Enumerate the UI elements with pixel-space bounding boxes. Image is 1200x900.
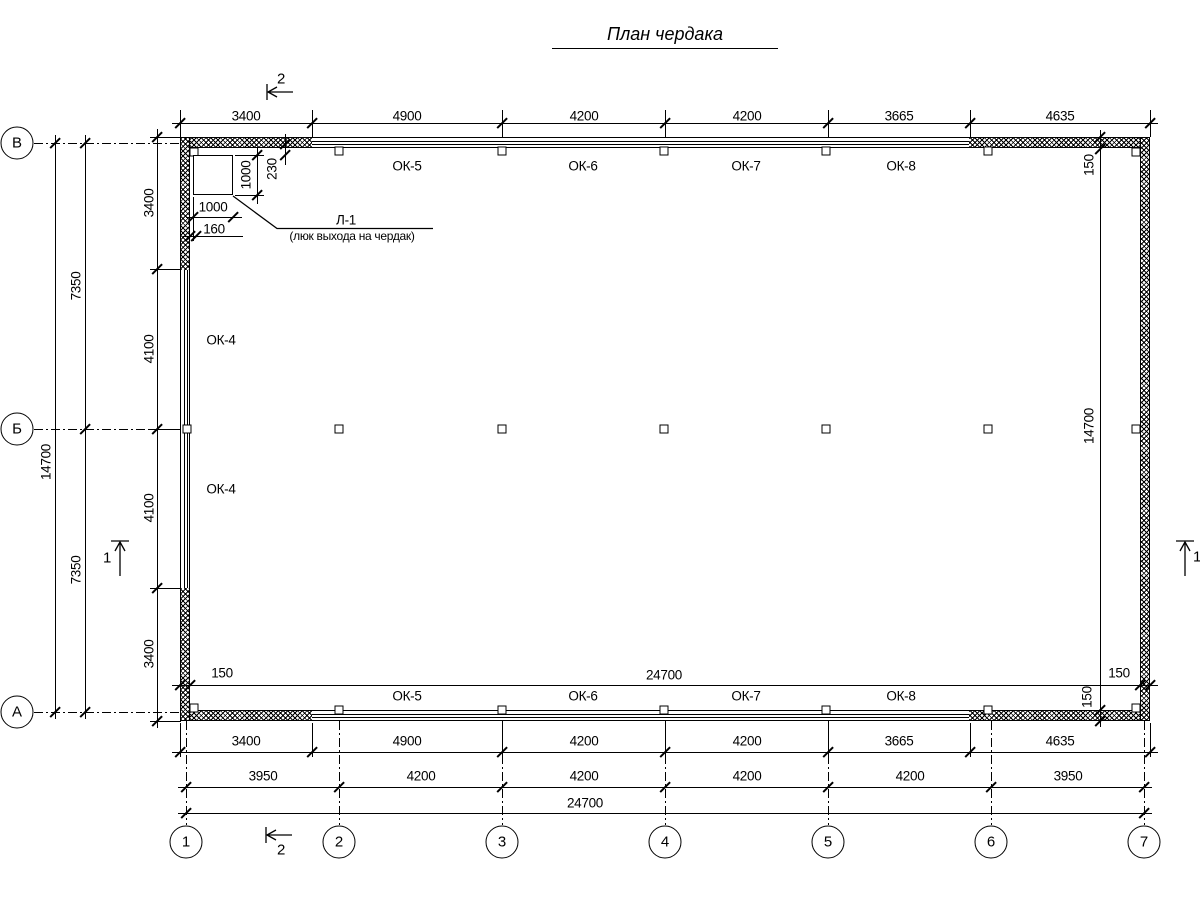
annotation-overlay [0, 0, 1200, 900]
section-arrow-1-left [111, 541, 129, 576]
leader-line [233, 196, 433, 229]
section-arrow-2-bottom [266, 827, 292, 843]
section-arrow-2-top [267, 84, 293, 100]
section-arrow-1-right [1176, 541, 1194, 576]
attic-plan-drawing: План чердака [0, 0, 1200, 900]
